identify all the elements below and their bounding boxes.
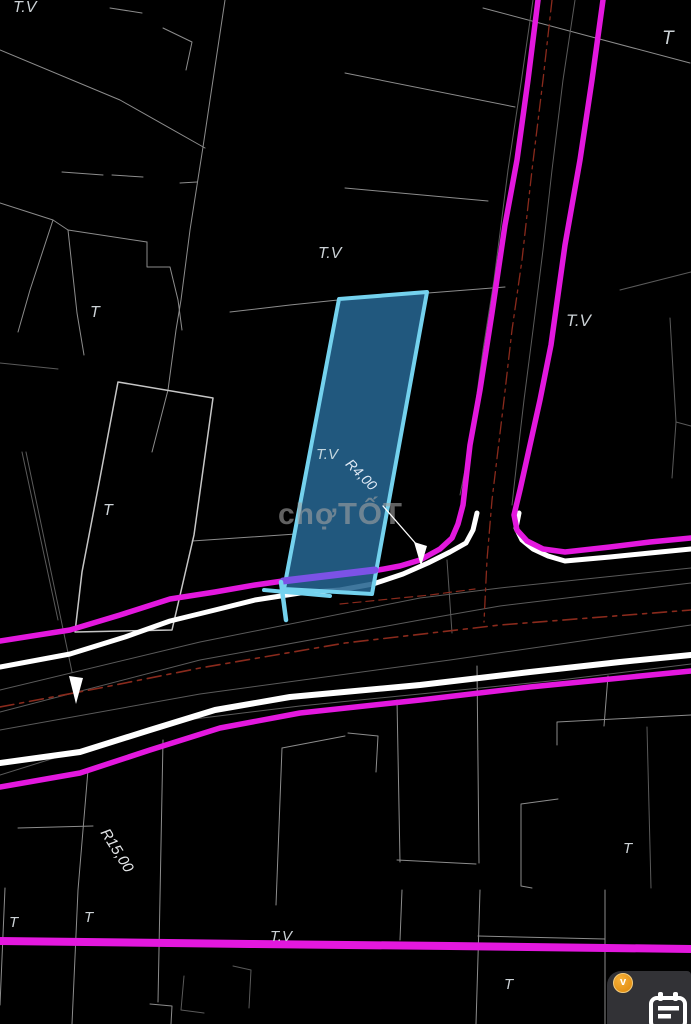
watermark-text: TỐT bbox=[338, 495, 403, 531]
parcel-line bbox=[476, 890, 480, 1024]
parcel-line bbox=[670, 318, 676, 478]
road-magenta-line bbox=[0, 941, 691, 949]
parcel-line bbox=[152, 0, 225, 452]
road-magenta-line bbox=[0, 671, 691, 787]
calendar-note-icon bbox=[648, 991, 688, 1024]
parcel-line bbox=[150, 1004, 172, 1024]
parcel-line bbox=[147, 242, 182, 330]
label-tv: T.V bbox=[270, 928, 294, 945]
parcel-line bbox=[447, 560, 452, 633]
parcel-line bbox=[282, 736, 345, 748]
highlighted-plot bbox=[284, 292, 427, 594]
parcel-line bbox=[397, 860, 476, 864]
v-badge-label: v bbox=[620, 976, 626, 988]
parcel-line bbox=[0, 363, 58, 369]
parcel-line bbox=[676, 422, 691, 426]
label-t: T bbox=[9, 914, 20, 931]
parcel-line bbox=[348, 733, 378, 772]
down-arrowhead bbox=[69, 676, 83, 704]
parcel-line bbox=[163, 28, 192, 70]
parcel-line bbox=[181, 976, 204, 1013]
cadastral-map-image: chợTỐTT.VTT.VTT.VTT.VR4,00R15,00TTTT.VT … bbox=[0, 0, 691, 1024]
parcel-line bbox=[521, 799, 558, 888]
road-white-line bbox=[516, 513, 691, 561]
label-radius-r15: R15,00 bbox=[97, 826, 137, 877]
label-t: T bbox=[623, 840, 634, 857]
parcel-line bbox=[158, 740, 163, 1002]
label-t: T bbox=[662, 28, 675, 49]
parcel-line bbox=[345, 73, 515, 107]
parcel-line bbox=[72, 770, 88, 1024]
parcel-line bbox=[18, 220, 53, 332]
parcel-line bbox=[230, 300, 338, 312]
parcel-line bbox=[400, 890, 402, 940]
parcel-line bbox=[112, 175, 143, 177]
map-svg: chợTỐTT.VTT.VTT.VTT.VR4,00R15,00TTTT.VT bbox=[0, 0, 691, 1024]
parcel-line bbox=[478, 936, 605, 939]
road-magenta-line bbox=[514, 0, 691, 552]
parcel-line bbox=[620, 272, 691, 290]
label-t: T bbox=[103, 502, 114, 519]
parcel-line bbox=[0, 50, 205, 148]
calendar-shortcut-button[interactable]: v bbox=[607, 971, 691, 1024]
parcel-line bbox=[68, 230, 84, 355]
label-t: T bbox=[84, 909, 95, 926]
parcel-line bbox=[604, 676, 608, 726]
label-t: T bbox=[504, 976, 515, 993]
v-badge: v bbox=[613, 973, 633, 993]
label-tv: T.V bbox=[318, 245, 343, 262]
parcel-line bbox=[345, 188, 488, 201]
road-magenta-line bbox=[0, 0, 538, 641]
label-tv: T.V bbox=[13, 0, 38, 16]
parcel-line bbox=[233, 966, 251, 1008]
parcel-line bbox=[180, 182, 197, 183]
leader-line bbox=[22, 452, 58, 620]
parcel-line bbox=[110, 8, 142, 13]
label-t: T bbox=[90, 304, 101, 321]
parcel-line bbox=[557, 715, 691, 745]
parcel-line bbox=[0, 203, 147, 242]
parcel-line bbox=[397, 700, 400, 862]
parcel-line bbox=[0, 888, 5, 1005]
parcel-line bbox=[62, 172, 103, 175]
label-tv-plot: T.V bbox=[316, 446, 340, 463]
parcel-line bbox=[276, 748, 282, 905]
parcel-line bbox=[483, 8, 690, 63]
label-tv: T.V bbox=[566, 311, 593, 330]
watermark-text: chợ bbox=[278, 498, 337, 531]
parcel-line bbox=[18, 826, 93, 828]
parcel-line bbox=[647, 727, 651, 888]
road-edge-gray bbox=[0, 625, 691, 730]
leader-line bbox=[26, 452, 72, 672]
parcel-line bbox=[192, 534, 296, 541]
